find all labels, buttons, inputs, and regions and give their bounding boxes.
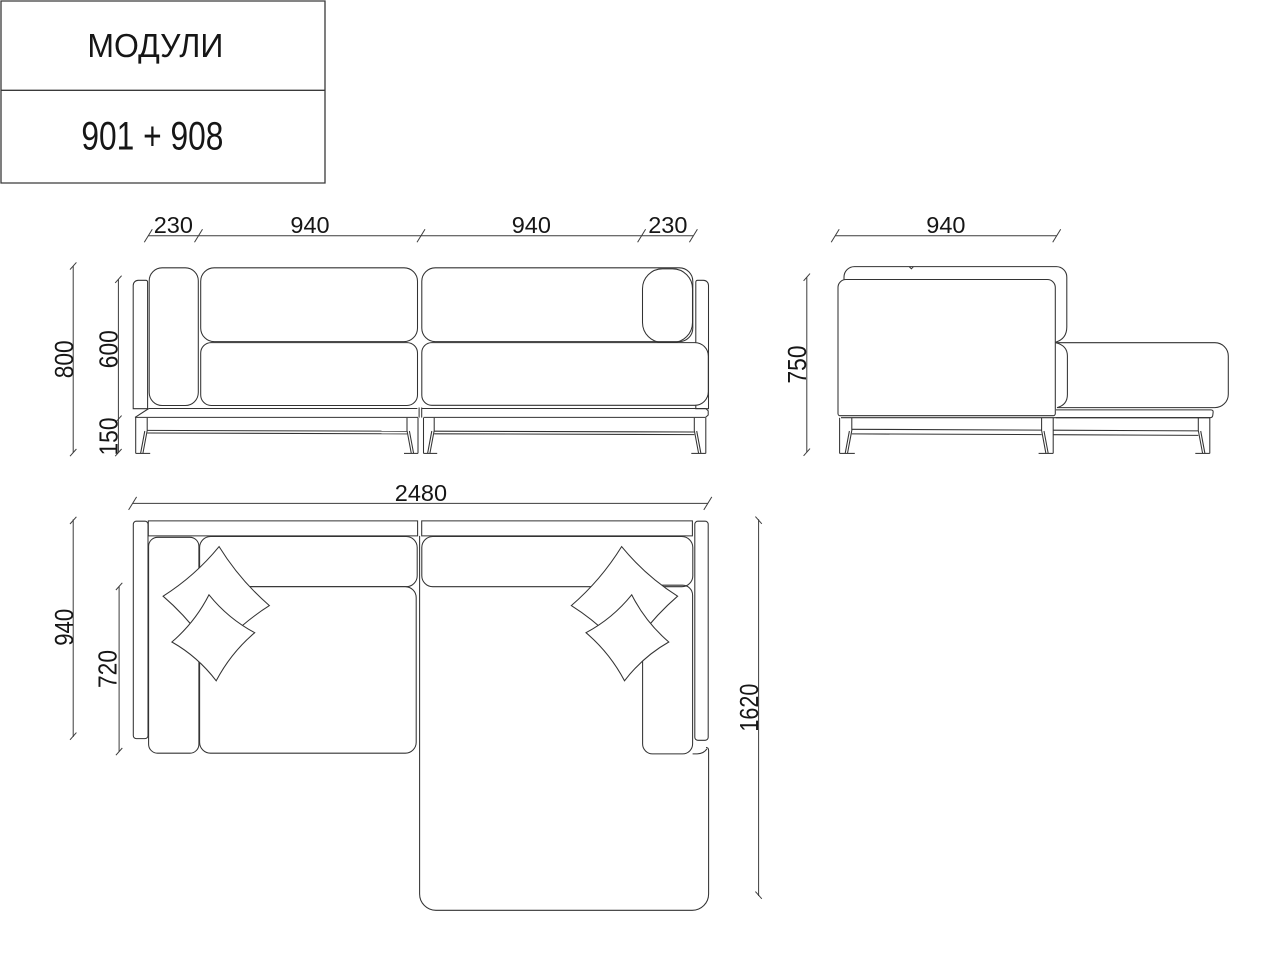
svg-text:1620: 1620 — [734, 684, 764, 732]
svg-text:940: 940 — [926, 212, 965, 238]
svg-text:600: 600 — [93, 330, 123, 368]
svg-text:720: 720 — [92, 650, 122, 688]
svg-text:230: 230 — [154, 212, 193, 238]
svg-text:2480: 2480 — [395, 480, 447, 506]
svg-text:750: 750 — [782, 346, 812, 384]
svg-text:МОДУЛИ: МОДУЛИ — [87, 27, 223, 64]
svg-text:940: 940 — [512, 212, 551, 238]
svg-text:940: 940 — [290, 212, 329, 238]
svg-text:230: 230 — [648, 212, 687, 238]
svg-text:800: 800 — [49, 340, 79, 378]
svg-text:150: 150 — [93, 418, 123, 456]
svg-text:940: 940 — [49, 609, 79, 646]
svg-text:901 + 908: 901 + 908 — [81, 115, 223, 159]
